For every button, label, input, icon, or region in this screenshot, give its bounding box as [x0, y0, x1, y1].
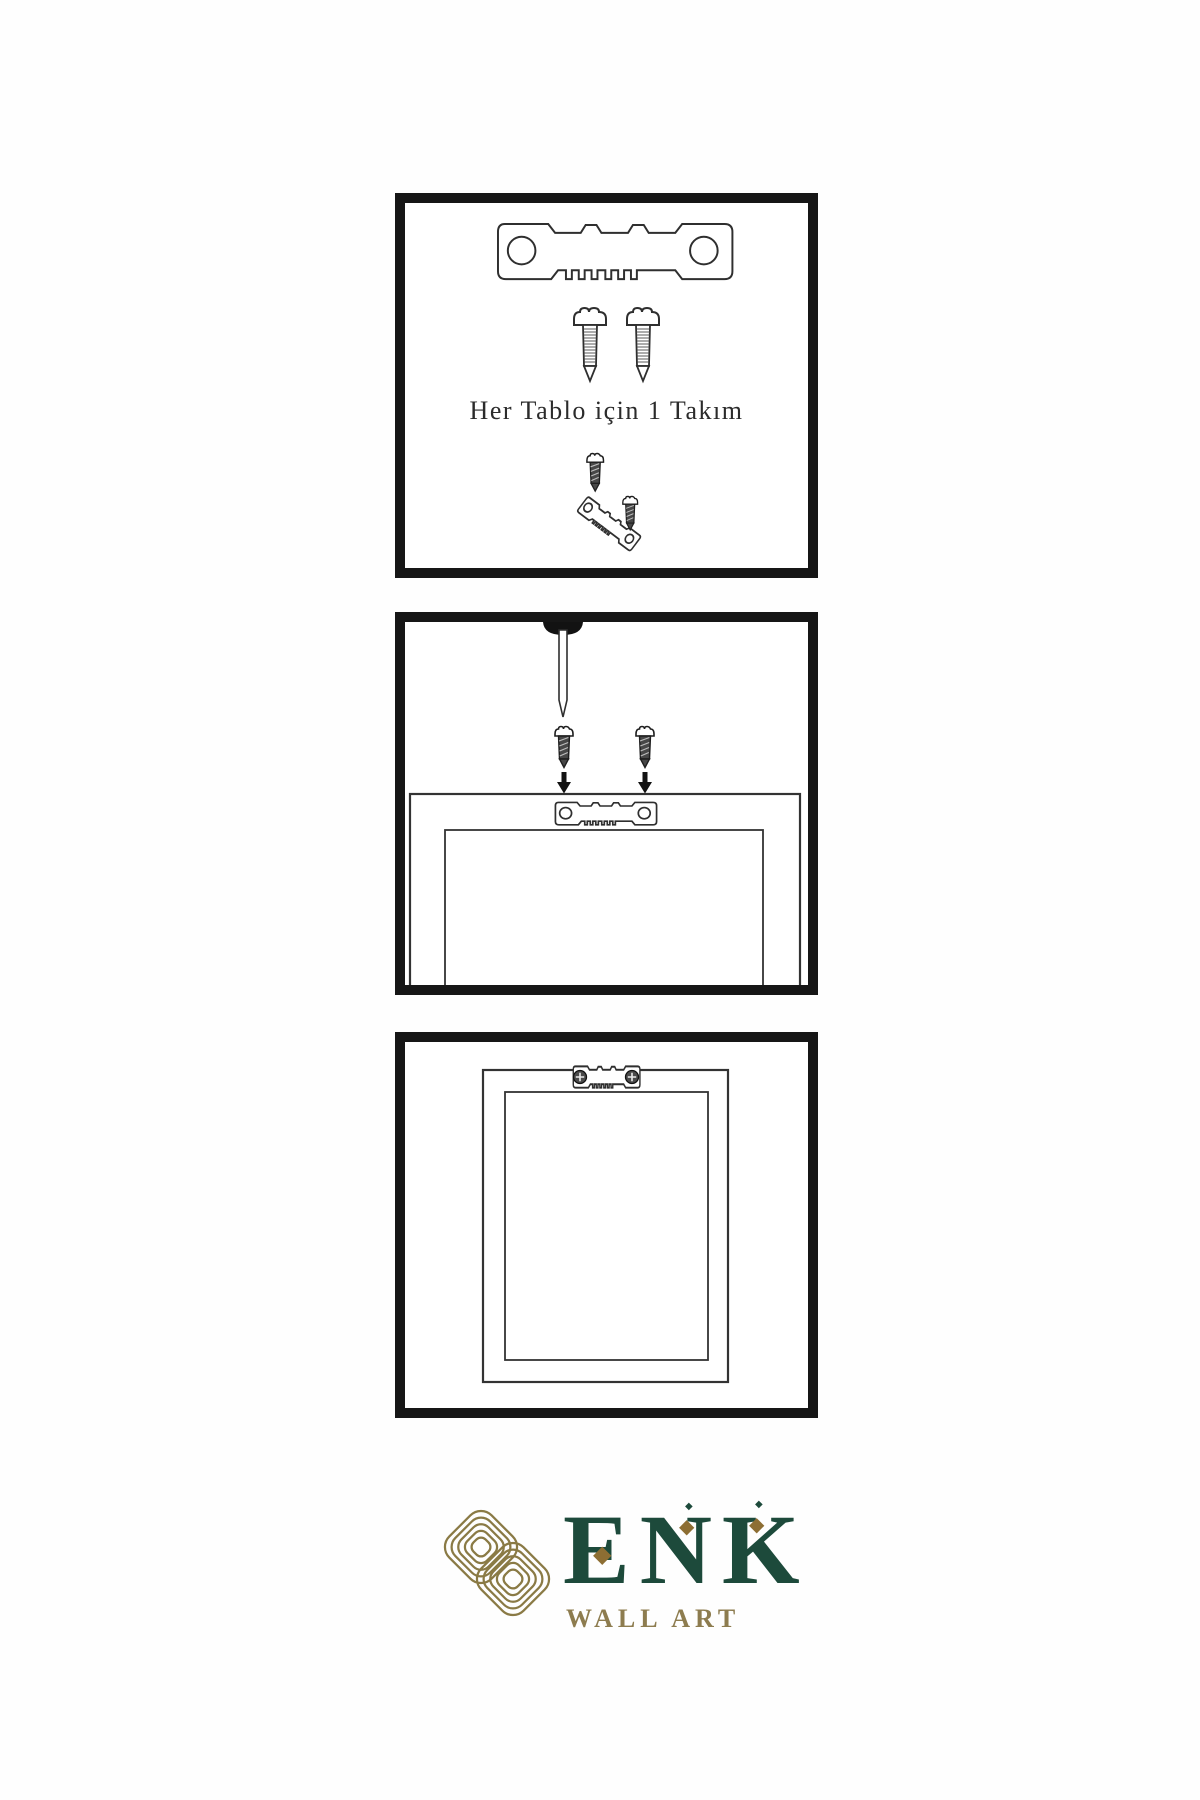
- screw-icon: [626, 308, 660, 381]
- screw-icon: [573, 308, 607, 381]
- frame-back-inner-outline: [445, 830, 763, 985]
- diamond-accent-icon: ◆: [685, 1502, 693, 1512]
- kit-caption: Her Tablo için 1 Takım: [405, 396, 808, 426]
- sawtooth-hanger-icon: [555, 802, 656, 824]
- diamond-accent-icon: ◆: [755, 1500, 763, 1510]
- brand-subtitle: WALL ART: [566, 1604, 843, 1634]
- hardware-kit-diagram: [405, 203, 808, 568]
- diamond-accent-icon: ◆: [679, 1516, 694, 1536]
- down-arrow-icon: [557, 772, 571, 794]
- dark-screw-icon: [587, 453, 604, 491]
- hung-frame-diagram: [405, 1042, 808, 1408]
- brand-logo: ENK WALL ART ◆ ◆ ◆ ◆ ◆: [433, 1497, 853, 1677]
- interlocked-knot-icon: [433, 1497, 561, 1629]
- dark-screw-icon: [623, 496, 638, 530]
- panel-hardware-kit: Her Tablo için 1 Takım: [395, 193, 818, 578]
- phillips-screw-icon: [574, 1071, 587, 1084]
- dark-screw-icon: [555, 727, 573, 768]
- sawtooth-hanger-icon: [498, 224, 732, 279]
- logo-text-block: ENK WALL ART ◆ ◆ ◆ ◆ ◆: [563, 1500, 843, 1634]
- wall-nail-icon: [543, 622, 583, 717]
- phillips-screw-icon: [626, 1071, 639, 1084]
- panel-mounting-instructions: [395, 612, 818, 995]
- diamond-accent-icon: ◆: [749, 1514, 764, 1534]
- diamond-accent-icon: ◆: [593, 1542, 611, 1566]
- dark-screw-icon: [636, 727, 654, 768]
- frame-front-outer-outline: [483, 1070, 728, 1382]
- down-arrow-icon: [638, 772, 652, 794]
- mounting-diagram: [405, 622, 808, 985]
- panel-hung-frame: [395, 1032, 818, 1418]
